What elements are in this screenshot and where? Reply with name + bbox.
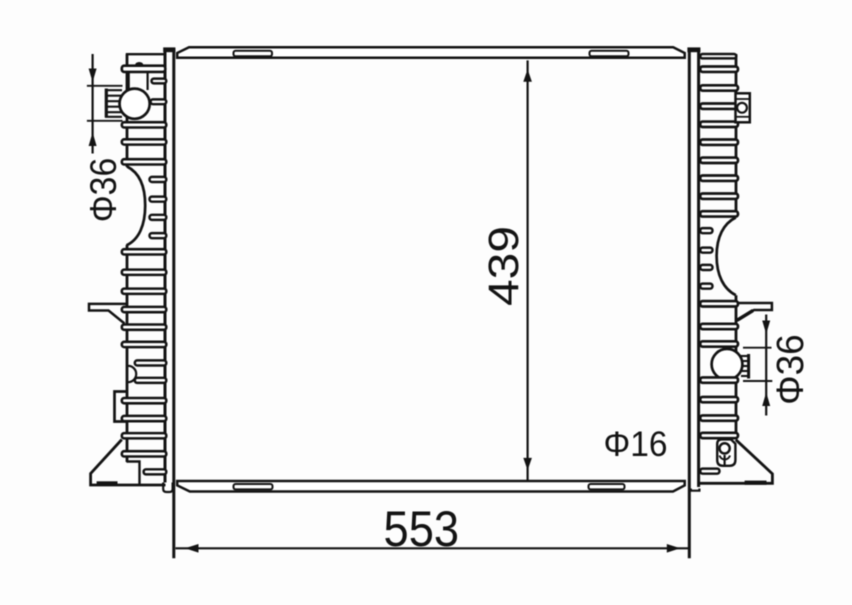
svg-text:439: 439 <box>481 226 528 306</box>
svg-text:Φ16: Φ16 <box>604 425 668 464</box>
svg-text:553: 553 <box>384 501 460 557</box>
svg-text:Φ36: Φ36 <box>83 158 124 223</box>
svg-text:Φ36: Φ36 <box>770 334 812 405</box>
